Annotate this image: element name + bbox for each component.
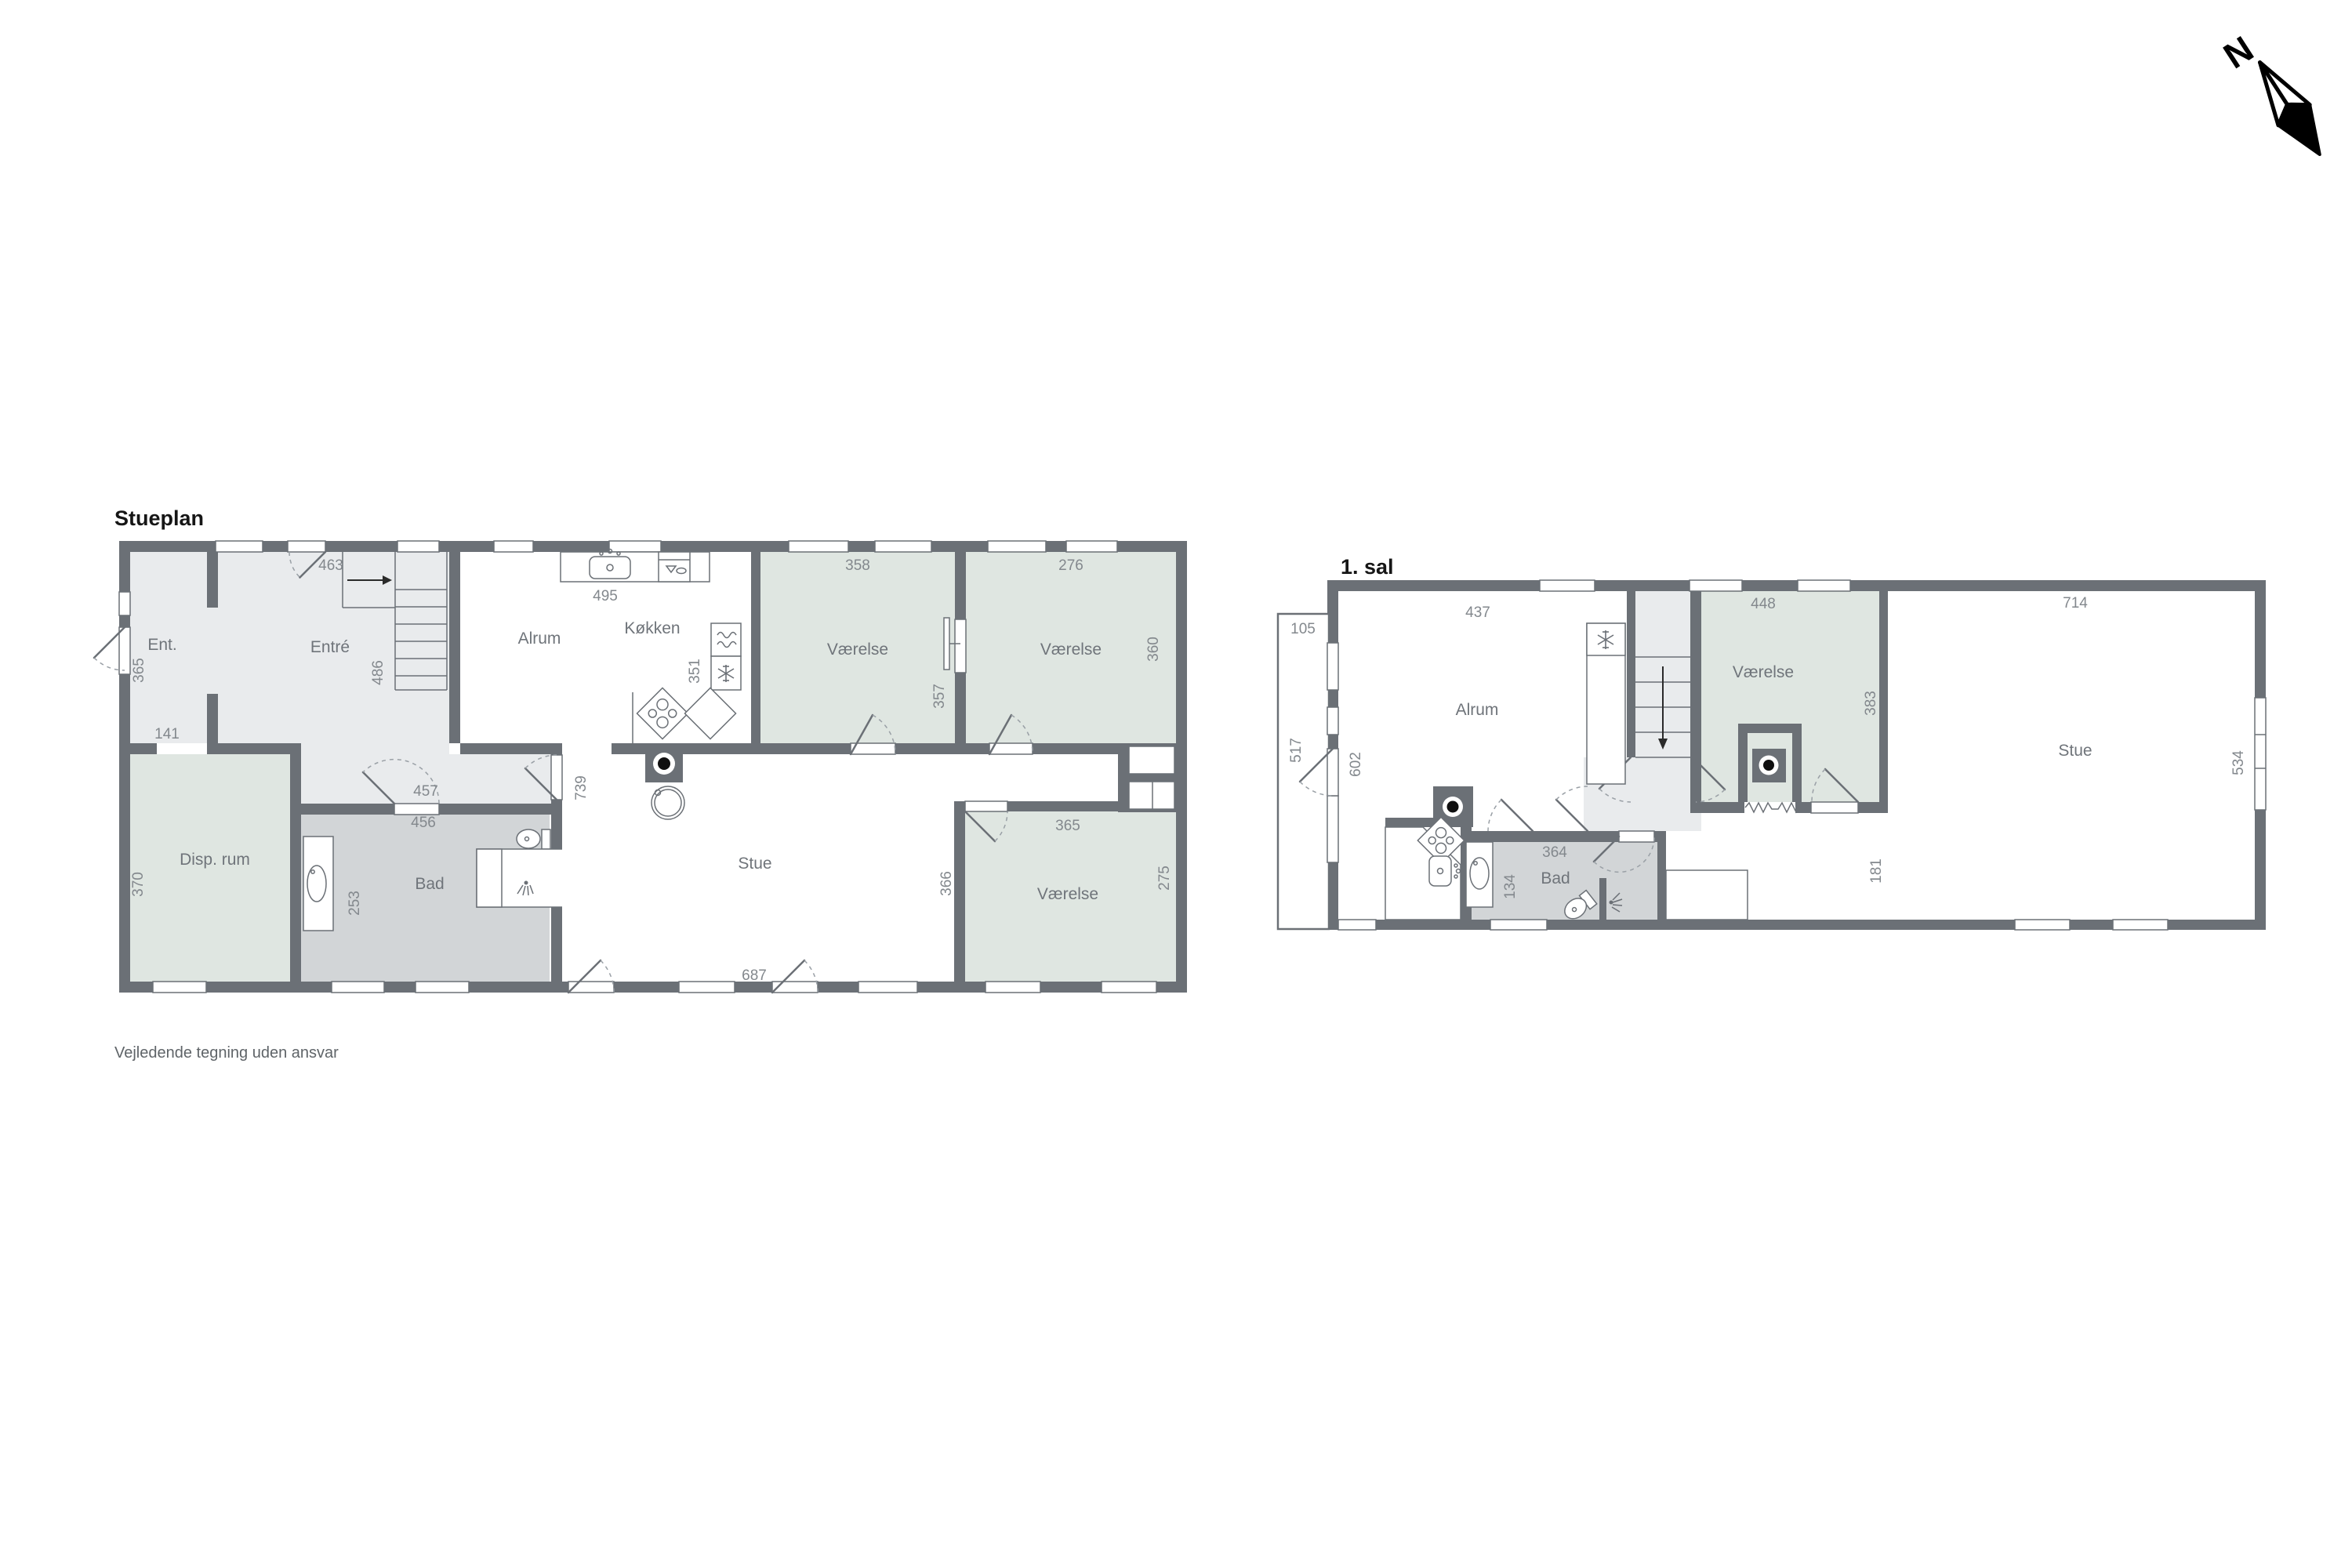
bath-sink-icon-2 xyxy=(1466,842,1493,907)
freezer-icon xyxy=(711,656,741,690)
room-label-entre: Entré xyxy=(310,638,350,656)
stueplan-title: Stueplan xyxy=(114,506,204,530)
room-label-kokken: Køkken xyxy=(624,619,680,637)
north-compass: N xyxy=(2211,8,2352,196)
dim-134: 134 xyxy=(1502,874,1519,899)
dim-486: 486 xyxy=(370,660,387,685)
dim-383: 383 xyxy=(1863,691,1879,716)
dim-456: 456 xyxy=(411,815,436,831)
room-label-stue: Stue xyxy=(738,855,771,873)
toilet-icon xyxy=(517,829,550,849)
dim-517: 517 xyxy=(1288,738,1305,763)
dim-714: 714 xyxy=(2063,595,2088,612)
dim-457: 457 xyxy=(413,783,438,800)
dim-141: 141 xyxy=(154,726,180,742)
shower-icon xyxy=(477,849,562,907)
dishwasher-icon xyxy=(659,552,690,582)
room-label-bad-1sal: Bad xyxy=(1541,869,1570,887)
dim-360: 360 xyxy=(1145,637,1162,662)
room-label-stue-1sal: Stue xyxy=(2058,742,2092,760)
dim-495: 495 xyxy=(593,588,618,604)
balcony-annex xyxy=(1278,614,1329,929)
room-label-vaerelse3: Værelse xyxy=(1037,885,1098,903)
dim-105: 105 xyxy=(1290,621,1316,637)
dim-364: 364 xyxy=(1542,844,1567,861)
stueplan-plan: Stueplan xyxy=(110,502,1207,1051)
dim-463: 463 xyxy=(318,557,343,574)
room-label-bad: Bad xyxy=(415,875,444,893)
room-label-disp-rum: Disp. rum xyxy=(180,851,250,869)
wood-stove-icon-2 xyxy=(1752,749,1786,782)
floorplan-page: N Stueplan xyxy=(0,0,2352,1568)
room-label-alrum: Alrum xyxy=(518,630,561,648)
compass-n-label: N xyxy=(2216,28,2260,77)
dim-365-ent: 365 xyxy=(131,658,147,683)
dim-448: 448 xyxy=(1751,596,1776,612)
firstfloor-title: 1. sal xyxy=(1341,555,1394,579)
disclaimer-text: Vejledende tegning uden ansvar xyxy=(114,1044,339,1062)
dim-275: 275 xyxy=(1156,866,1173,891)
dim-351: 351 xyxy=(687,659,703,684)
dim-181: 181 xyxy=(1868,858,1885,884)
oven-icon xyxy=(711,623,741,656)
firstfloor-plan: 1. sal xyxy=(1262,533,2313,1035)
dim-602: 602 xyxy=(1348,752,1364,777)
bath-sink-icon xyxy=(303,837,333,931)
dim-366: 366 xyxy=(938,871,955,896)
fridge-column-icon xyxy=(1587,623,1625,784)
dim-437: 437 xyxy=(1465,604,1490,621)
stue-right-window xyxy=(2255,698,2266,810)
room-label-alrum-1sal: Alrum xyxy=(1456,701,1499,719)
wardrobe-box xyxy=(1666,870,1748,920)
dim-358: 358 xyxy=(845,557,870,574)
dim-253: 253 xyxy=(347,891,363,916)
room-label-vaerelse1: Værelse xyxy=(827,641,888,659)
dim-357: 357 xyxy=(931,684,948,709)
dim-534: 534 xyxy=(2230,750,2247,775)
room-label-vaerelse-1sal: Værelse xyxy=(1733,663,1794,681)
room-label-vaerelse2: Værelse xyxy=(1040,641,1102,659)
dim-365-br: 365 xyxy=(1055,818,1080,834)
dim-739: 739 xyxy=(573,775,590,800)
room-label-ent: Ent. xyxy=(147,636,176,654)
dim-370: 370 xyxy=(130,872,147,897)
dim-687: 687 xyxy=(742,967,767,984)
dim-276: 276 xyxy=(1058,557,1083,574)
north-arrow-icon: N xyxy=(2216,18,2336,169)
